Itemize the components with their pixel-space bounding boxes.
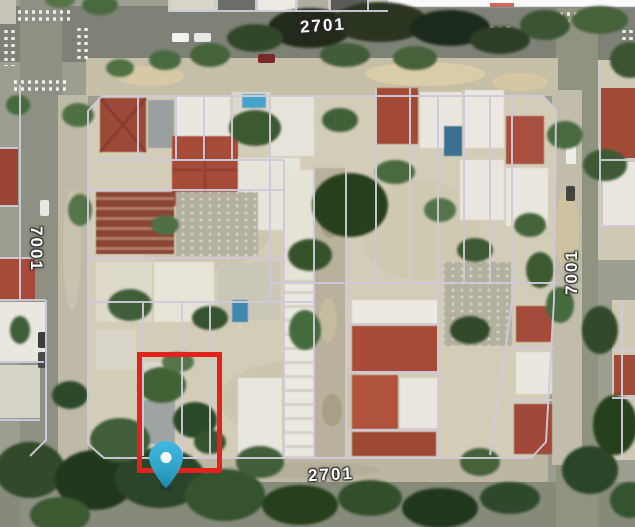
pin-center-dot xyxy=(161,452,172,463)
map-viewport[interactable]: 2701 2701 7001 7001 xyxy=(0,0,635,527)
aerial-imagery xyxy=(0,0,635,527)
